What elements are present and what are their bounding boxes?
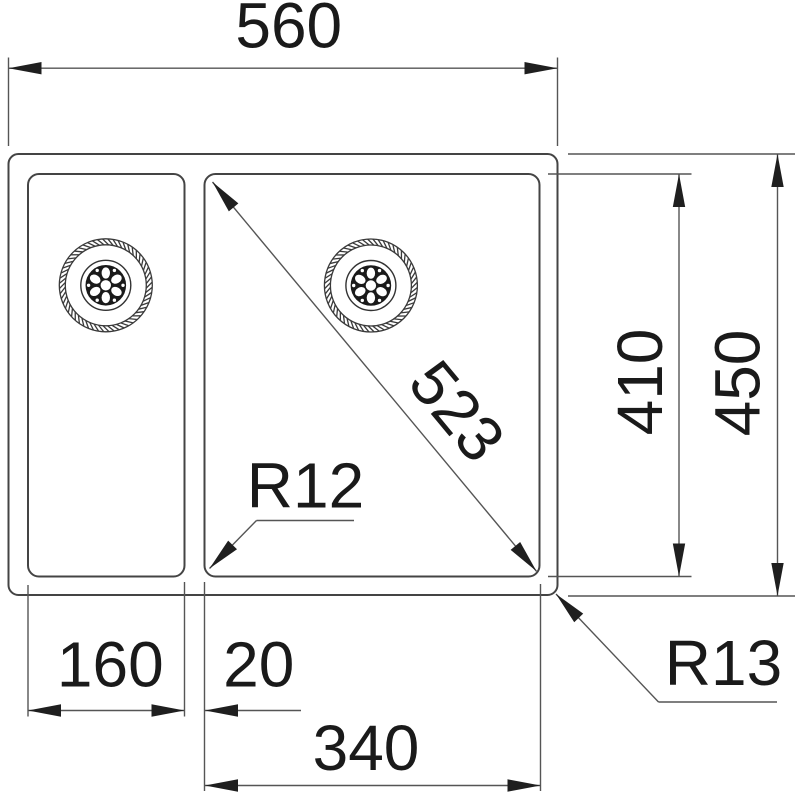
svg-text:450: 450 (701, 330, 773, 437)
svg-text:R12: R12 (247, 450, 364, 522)
svg-text:20: 20 (223, 629, 294, 701)
svg-text:410: 410 (604, 329, 676, 436)
svg-text:160: 160 (57, 629, 164, 701)
svg-text:523: 523 (395, 347, 519, 475)
svg-text:340: 340 (313, 712, 420, 784)
svg-text:560: 560 (235, 0, 342, 62)
svg-text:R13: R13 (665, 627, 782, 699)
